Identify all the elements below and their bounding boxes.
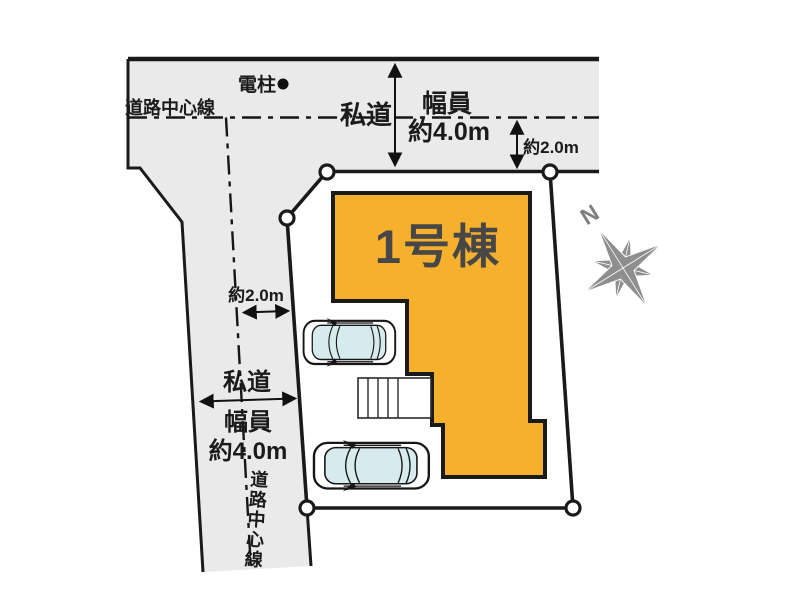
top-road-width-label: 幅員 xyxy=(422,90,472,118)
left-road-label: 私道 xyxy=(223,368,271,396)
car-glass xyxy=(325,448,417,484)
left-road-width-label: 幅員 xyxy=(224,409,272,436)
site-plan-svg: 1号棟 xyxy=(0,0,800,600)
utility-pole-dot xyxy=(278,79,289,90)
top-road-half-width-label: 約2.0m xyxy=(523,137,579,157)
stairs-outline xyxy=(358,378,431,418)
building-label: 1号棟 xyxy=(375,220,501,273)
left-road-half-width-label: 約2.0m xyxy=(228,285,284,305)
boundary-vertex xyxy=(320,165,334,179)
boundary-vertex xyxy=(543,165,557,179)
compass-facet-lines-main xyxy=(560,205,687,332)
boundary-vertex xyxy=(300,501,314,515)
entrance-stairs xyxy=(358,378,431,418)
car-1 xyxy=(304,318,396,367)
car-2 xyxy=(314,440,429,491)
top-road-width-value: 約4.0m xyxy=(408,117,490,146)
site-plan: 1号棟 xyxy=(0,0,800,600)
compass: N xyxy=(544,179,687,331)
top-road-centerline-label: 道路中心線 xyxy=(125,97,215,118)
utility-pole-label: 電柱 xyxy=(238,73,276,96)
top-road-label: 私道 xyxy=(340,100,392,130)
boundary-vertex xyxy=(566,501,580,515)
boundary-vertex xyxy=(280,211,294,225)
car-glass xyxy=(312,325,385,359)
compass-north-label: N xyxy=(576,199,604,230)
left-road-width-value: 約4.0m xyxy=(209,437,288,465)
